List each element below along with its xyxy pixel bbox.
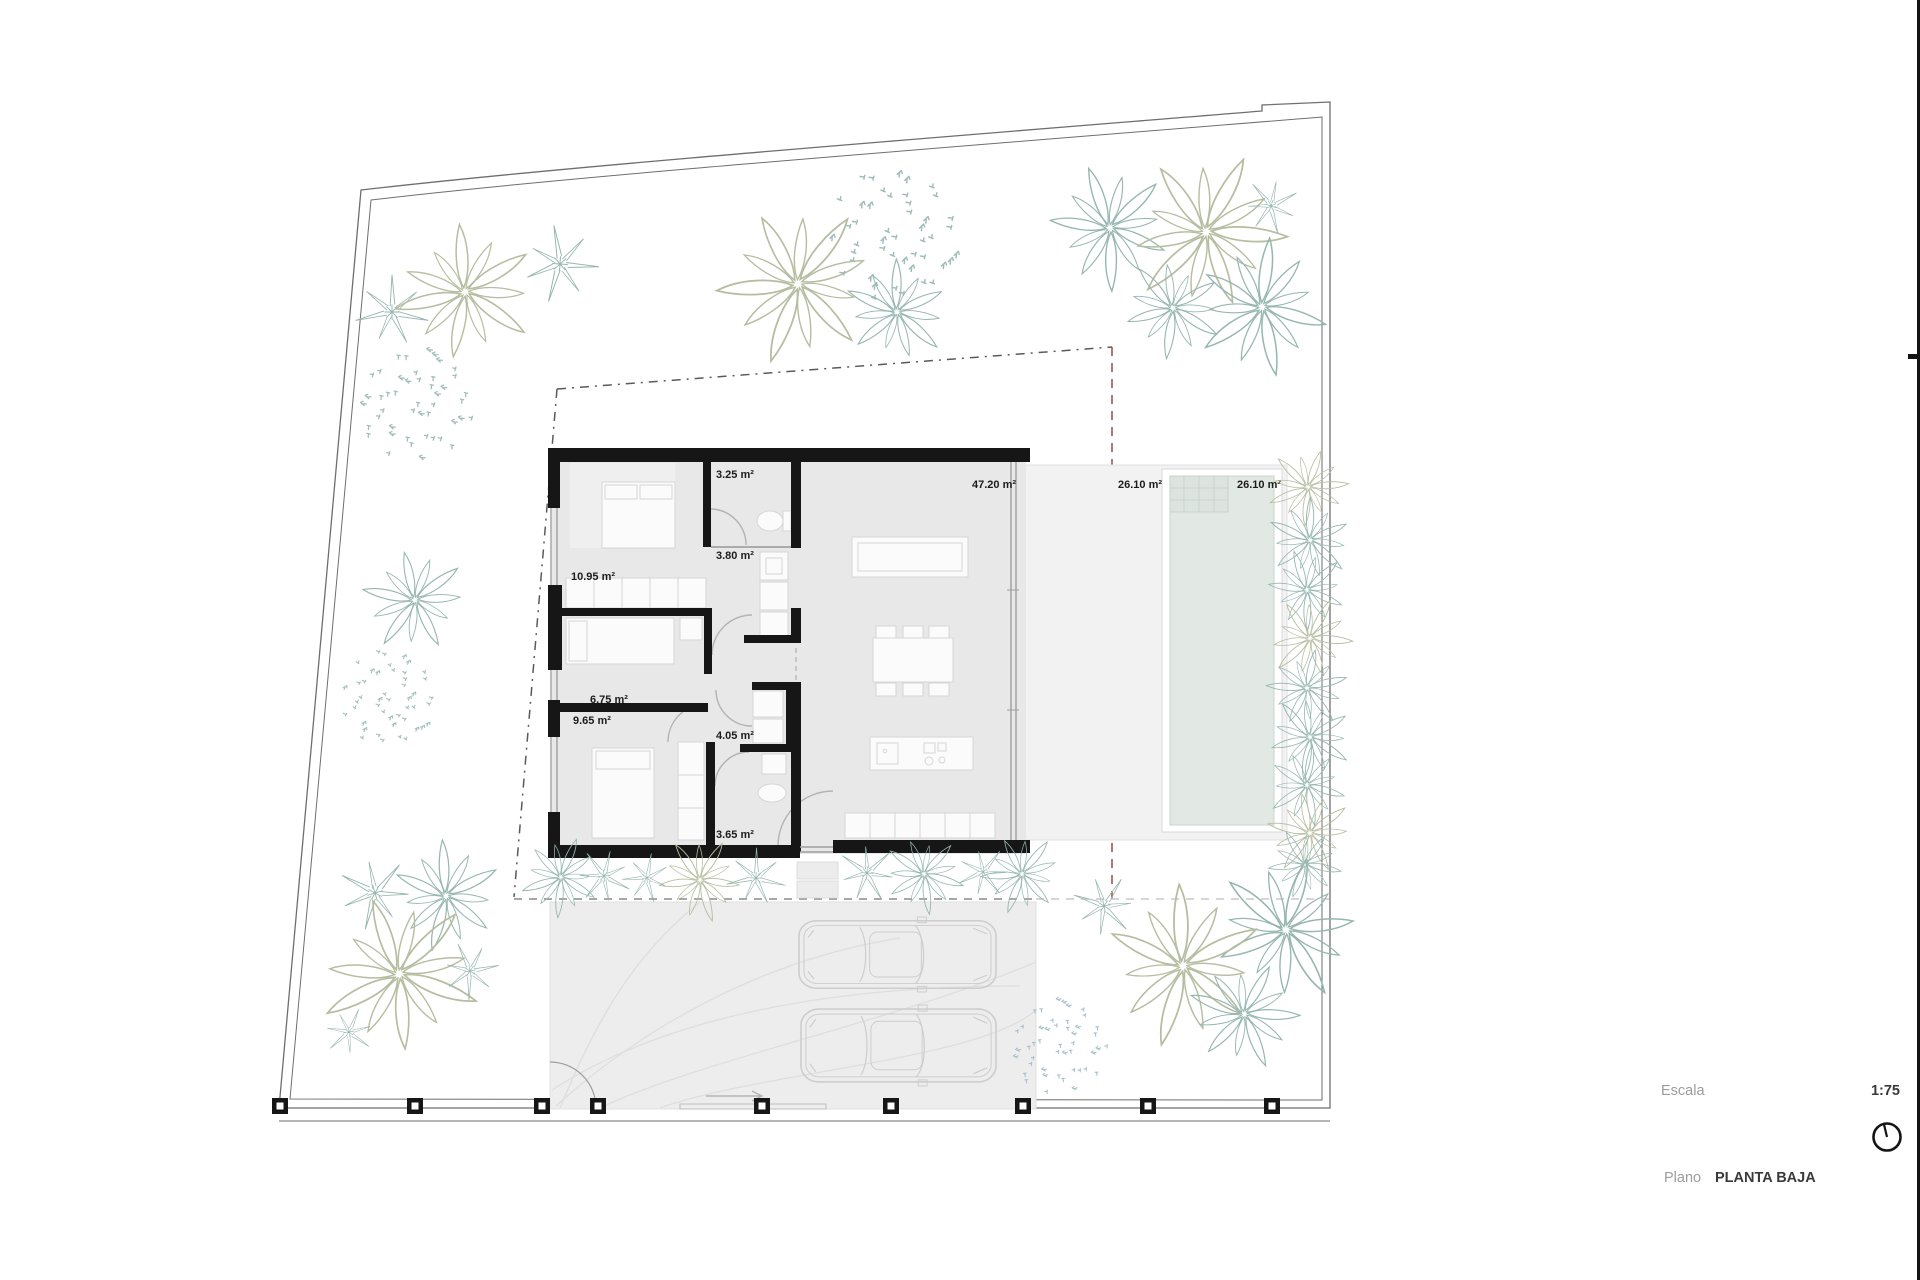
star-tree: [325, 843, 420, 940]
palm-tree: [1111, 251, 1235, 372]
palm-tree: [1033, 143, 1194, 306]
kitchen-island: [870, 737, 973, 770]
escala-label: Escala: [1661, 1083, 1705, 1099]
star-tree: [440, 937, 504, 1004]
bed-double-1: [602, 482, 675, 548]
pool-water: [1170, 476, 1274, 825]
room-label-bedroom1: 10.95 m²: [571, 571, 615, 583]
laundry-column: [760, 552, 788, 636]
fence-post: [272, 1098, 288, 1114]
sheet-border-tick: [1908, 354, 1918, 359]
toilet-1: [757, 511, 791, 531]
room-label-bath3: 3.65 m²: [716, 829, 754, 841]
wall-hall-stub: [744, 635, 801, 643]
wall-bed1-bottom: [560, 608, 712, 616]
room-label-bedroom3: 9.65 m²: [573, 715, 611, 727]
fence-post: [590, 1098, 606, 1114]
fence-post: [407, 1098, 423, 1114]
palm-tree: [707, 197, 876, 373]
wall-top: [548, 448, 1030, 462]
wall-bath2-right: [786, 682, 801, 752]
star-tree: [1063, 862, 1148, 946]
star-tree: [525, 223, 602, 305]
plano-value: PLANTA BAJA: [1715, 1170, 1816, 1186]
pool: [1162, 469, 1282, 832]
fence-post: [1140, 1098, 1156, 1114]
fence-post: [754, 1098, 770, 1114]
room-label-hall: 3.80 m²: [716, 550, 754, 562]
room-label-bedroom2: 6.75 m²: [590, 694, 628, 706]
shrub-tree: [327, 637, 445, 757]
wall-bottom-left: [548, 845, 800, 858]
room-label-bath1: 3.25 m²: [716, 469, 754, 481]
room-label-terrace: 26.10 m²: [1118, 479, 1162, 491]
wall-bottom-right: [833, 840, 1030, 853]
wall-bed2-bottom: [548, 703, 708, 712]
fence-post: [883, 1098, 899, 1114]
wall-left-b: [548, 585, 562, 670]
wardrobe-3: [678, 742, 704, 840]
sofa: [852, 537, 968, 577]
north-clock-icon: [1874, 1124, 1901, 1151]
palm-tree: [375, 200, 564, 389]
room-label-living: 47.20 m²: [972, 479, 1016, 491]
pool-steps: [1170, 476, 1228, 512]
room-label-bath2: 4.05 m²: [716, 730, 754, 742]
bed-3: [592, 748, 654, 838]
palm-tree: [1097, 869, 1279, 1057]
escala-value: 1:75: [1871, 1083, 1900, 1099]
wall-hall-right-top: [791, 462, 801, 548]
setback-top: [557, 347, 1112, 389]
fence-post: [1264, 1098, 1280, 1114]
dining-table: [873, 626, 953, 696]
star-tree: [1237, 168, 1309, 242]
shrub-tree: [338, 329, 495, 486]
wall-bath3-right: [791, 752, 801, 852]
wall-left-a: [548, 448, 560, 508]
star-tree: [621, 852, 669, 904]
fence-post: [534, 1098, 550, 1114]
fence-post: [1015, 1098, 1031, 1114]
palm-tree: [1174, 224, 1342, 396]
kitchen-counter: [845, 813, 995, 838]
title-block: Escala 1:75 Plano PLANTA BAJA: [1661, 0, 1920, 1280]
shower-2: [753, 691, 783, 743]
wall-bath1-left: [703, 462, 711, 547]
wall-bath2-bottom: [740, 744, 786, 752]
palm-tree: [346, 533, 476, 665]
driveway: [550, 902, 1036, 1109]
house: [548, 448, 1030, 898]
plano-label: Plano: [1664, 1170, 1701, 1186]
entry-walk: [797, 862, 838, 898]
wall-bed3-right: [706, 742, 715, 852]
wall-bed2-right: [704, 614, 712, 674]
floor-plan-sheet: 10.95 m² 3.25 m² 3.80 m² 6.75 m² 9.65 m²…: [0, 0, 1920, 1280]
